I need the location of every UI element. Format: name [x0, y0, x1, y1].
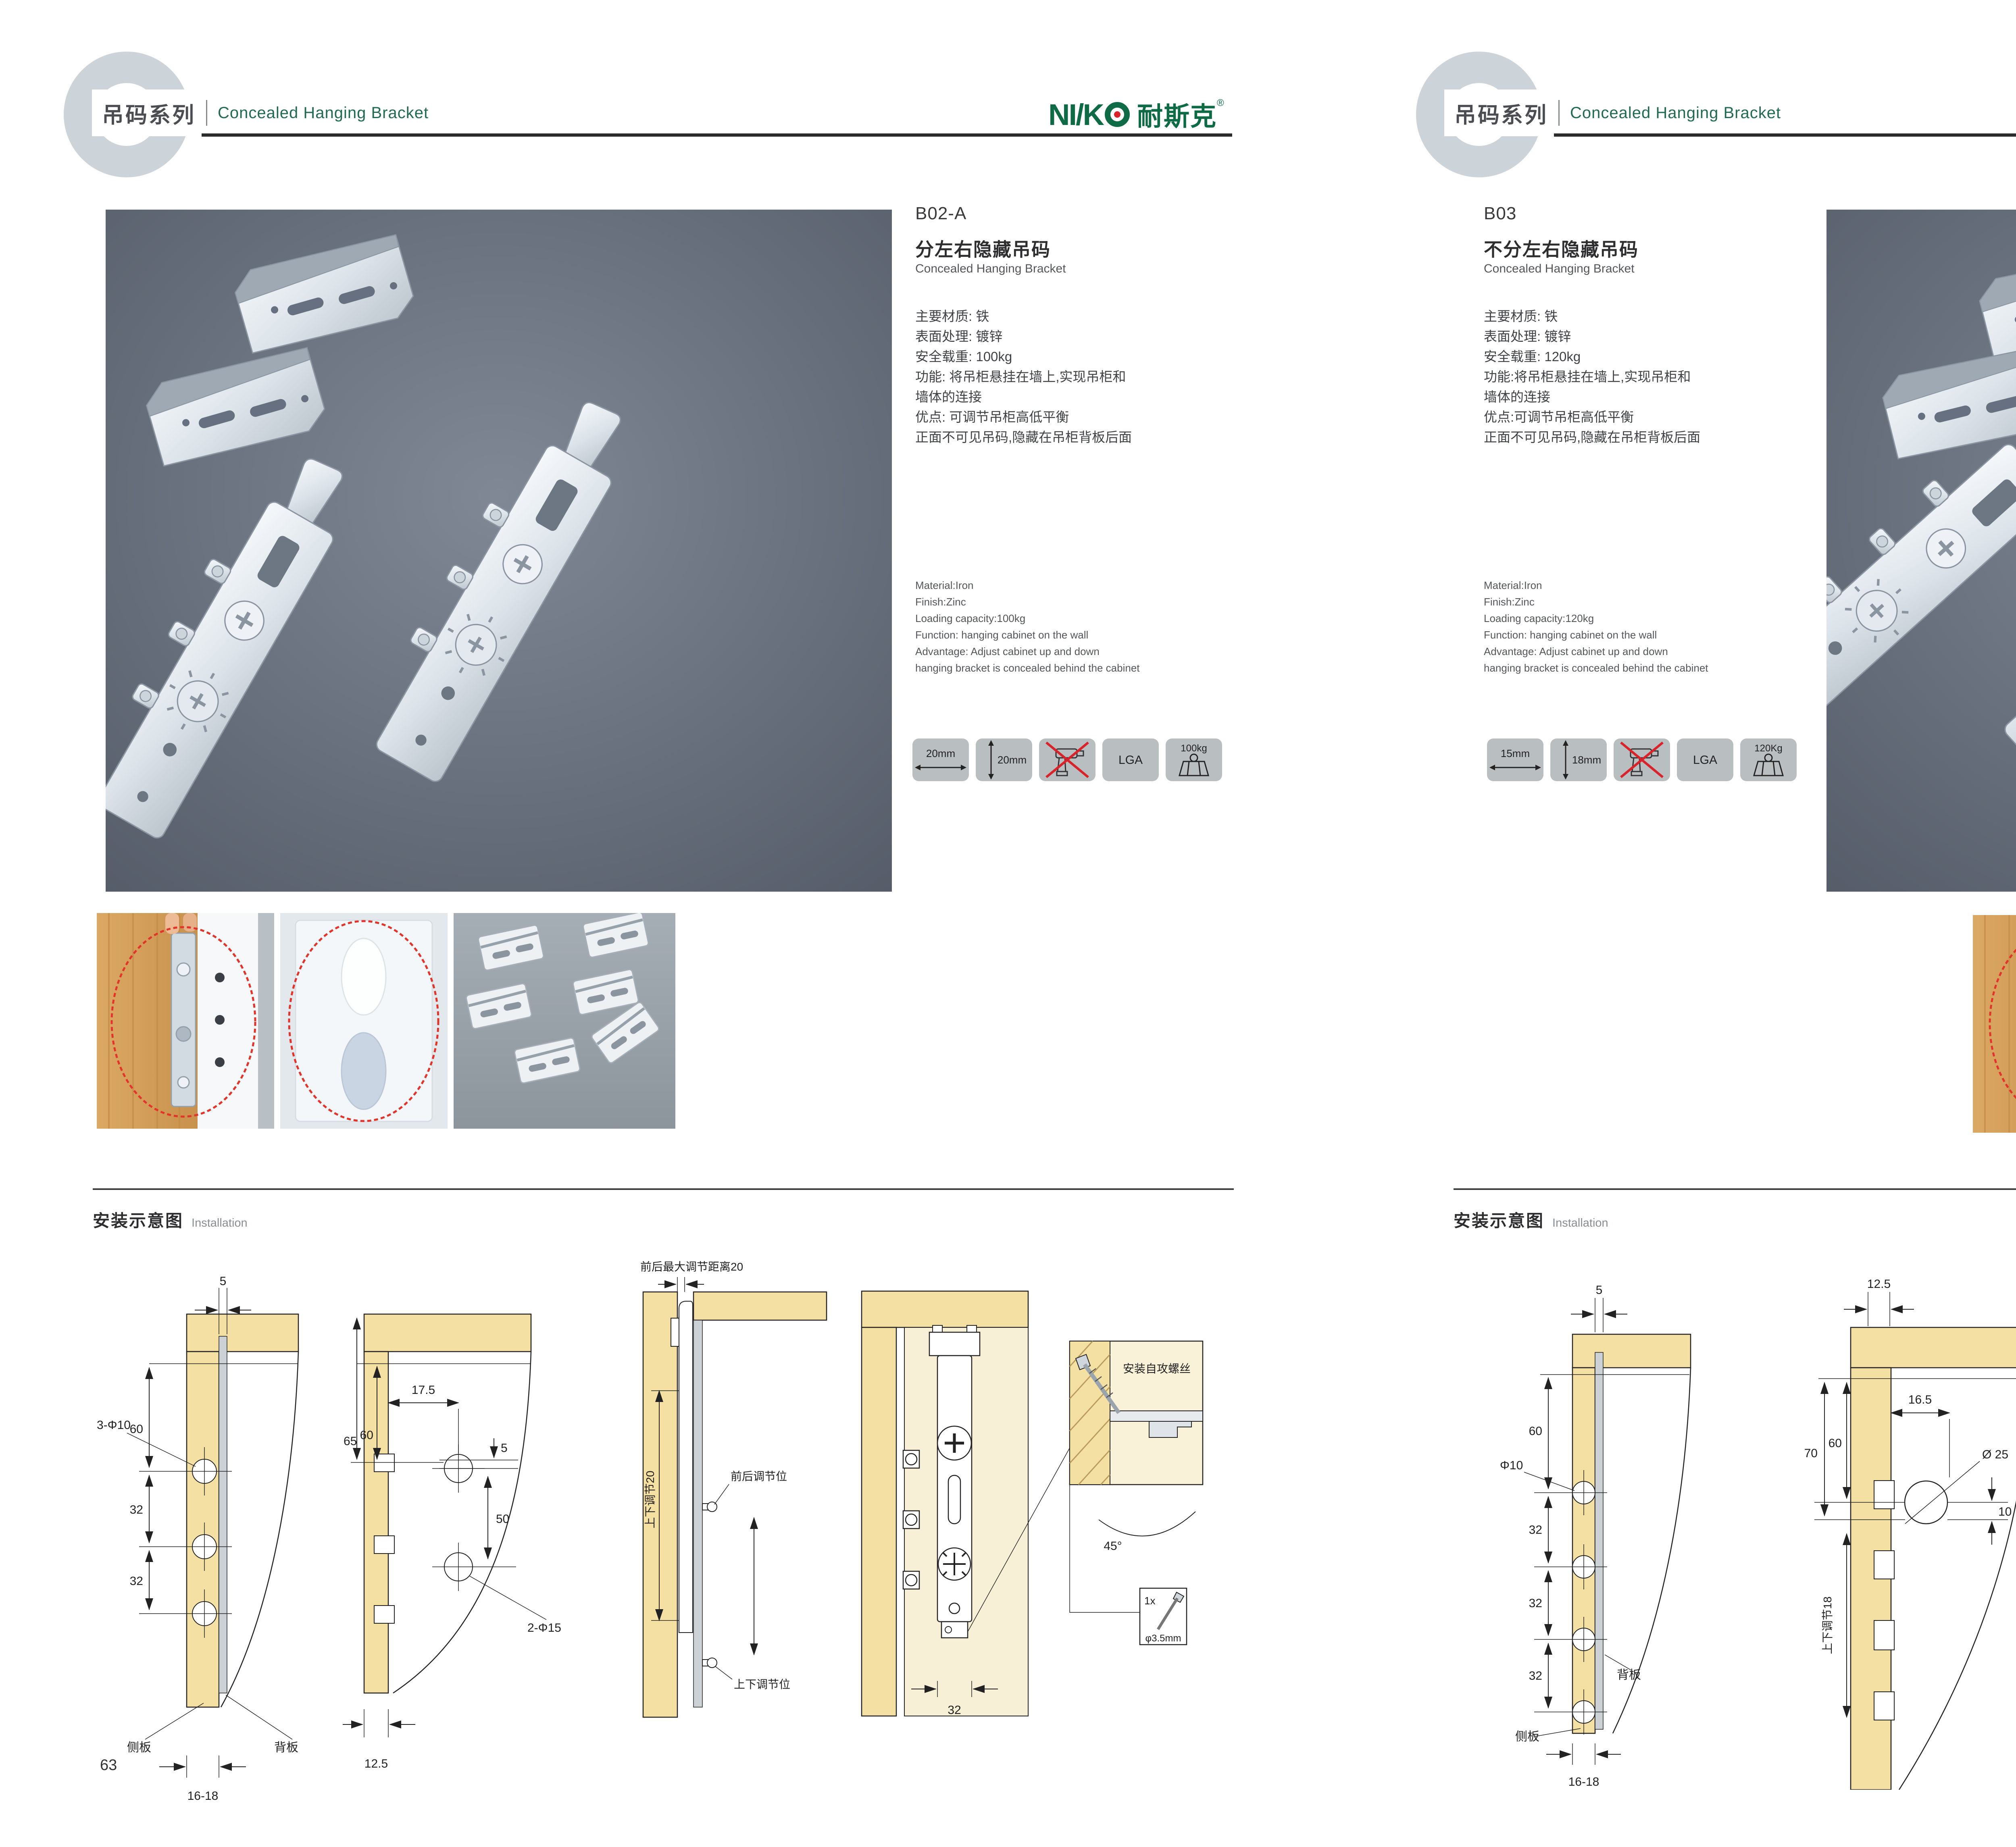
specs-en: Material:Iron Finish:Zinc Loading capaci…	[1484, 577, 1708, 676]
dim-label: 10	[1998, 1505, 2012, 1518]
dim-label: 17.5	[412, 1383, 435, 1397]
spec-line: Advantage: Adjust cabinet up and down	[915, 643, 1140, 660]
dim-label: 32	[1529, 1597, 1542, 1610]
specs-cn: 主要材质: 铁 表面处理: 镀锌 安全载重: 100kg 功能: 将吊柜悬挂在墙…	[915, 306, 1132, 447]
spec-line: Function: hanging cabinet on the wall	[1484, 627, 1708, 643]
page-header: 吊码系列 Concealed Hanging Bracket	[92, 89, 707, 136]
installation-rule	[93, 1188, 1234, 1190]
dim-label: 50	[496, 1512, 509, 1526]
dim-label: 16.5	[1908, 1393, 1932, 1406]
hole-callout: Φ10	[1500, 1459, 1523, 1472]
spec-line: Function: hanging cabinet on the wall	[915, 627, 1140, 643]
spec-line: 功能:将吊柜悬挂在墙上,实现吊柜和	[1484, 367, 1700, 387]
dim-label: 32	[948, 1703, 961, 1717]
installation-title-en: Installation	[192, 1217, 248, 1230]
hole-callout: 3-Φ10	[97, 1419, 131, 1432]
dim-label: 上下调节20	[644, 1471, 656, 1528]
dim-label: 16-18	[1568, 1775, 1599, 1789]
height-value: 18mm	[1572, 754, 1601, 766]
dia-label: φ3.5mm	[1145, 1633, 1181, 1644]
spec-line: Material:Iron	[915, 577, 1140, 594]
part-label: 侧板	[1515, 1730, 1539, 1743]
spec-line: 墙体的连接	[915, 387, 1132, 407]
installation-title-cn: 安装示意图	[1454, 1207, 1544, 1232]
product-name-cn: 不分左右隐藏吊码	[1484, 235, 1639, 262]
part-label: 背板	[274, 1741, 298, 1754]
part-label: 侧板	[127, 1741, 151, 1754]
brand-logo-cn: 耐斯克	[1137, 96, 1217, 133]
diagram-adjustment-side-view: 前后最大调节距离20 上下调节20 前后调节位 上下调节位	[637, 1258, 831, 1725]
specs-en: Material:Iron Finish:Zinc Loading capaci…	[915, 577, 1140, 676]
spec-line: Advantage: Adjust cabinet up and down	[1484, 643, 1708, 660]
feature-icons: 15mm 18mm LGA	[1487, 738, 1797, 781]
product-name-en: Concealed Hanging Bracket	[1484, 262, 1635, 276]
page-number: 63	[100, 1757, 117, 1774]
page-right: 吊码系列 Concealed Hanging Bracket NI/K耐斯克® …	[1352, 0, 2016, 1847]
dim-label: 5	[1596, 1283, 1603, 1297]
diagram-side-panel-drilling: 5 60 Φ10 32 32 32 背板 侧板 16-18	[1492, 1274, 1710, 1810]
no-drill-icon	[1039, 738, 1095, 781]
dim-label: 5	[501, 1441, 508, 1455]
diagram-screw-detail: 安装自攻螺丝 45° 1x φ3.5mm	[960, 1330, 1250, 1653]
width-icon: 15mm	[1487, 738, 1543, 781]
brand-logo-dot-icon	[1114, 111, 1120, 118]
dim-label: 12.5	[364, 1757, 388, 1770]
dim-label: 16-18	[187, 1789, 219, 1803]
product-code: B03	[1484, 204, 1516, 224]
callout-label: 前后调节位	[731, 1470, 787, 1483]
dim-label: 5	[220, 1275, 227, 1288]
product-name-cn: 分左右隐藏吊码	[915, 235, 1051, 262]
header-rule	[202, 133, 1232, 137]
installation-title-en: Installation	[1552, 1217, 1608, 1230]
dim-label: 70	[1804, 1447, 1818, 1460]
spec-line: 主要材质: 铁	[1484, 306, 1700, 327]
series-title-cn: 吊码系列	[1454, 97, 1548, 129]
brand-logo: NI/K耐斯克®	[1048, 96, 1224, 133]
dim-label: 60	[360, 1429, 373, 1442]
load-value: 120Kg	[1754, 743, 1782, 754]
lga-icon: LGA	[1102, 738, 1159, 781]
width-icon: 20mm	[912, 738, 969, 781]
spec-line: 功能: 将吊柜悬挂在墙上,实现吊柜和	[915, 367, 1132, 387]
brand-logo-latin: NI/K	[1048, 98, 1103, 132]
spec-line: Loading capacity:100kg	[915, 610, 1140, 627]
spec-line: 正面不可见吊码,隐藏在吊柜背板后面	[1484, 427, 1700, 447]
dim-label: 12.5	[1867, 1277, 1891, 1291]
spec-line: 正面不可见吊码,隐藏在吊柜背板后面	[915, 427, 1132, 447]
header-divider	[206, 100, 207, 126]
diagram-hole-positions: 12.5 70 60 16.5 Ø 25 10 上下调节18	[1726, 1274, 2016, 1790]
spec-line: 优点: 可调节吊柜高低平衡	[915, 407, 1132, 427]
dim-label: 60	[1829, 1437, 1842, 1450]
thumb-concealed-view	[280, 913, 448, 1129]
installation-header: 安装示意图 Installation	[1454, 1207, 1608, 1232]
load-value: 100kg	[1181, 743, 1207, 754]
spec-line: Finish:Zinc	[1484, 594, 1708, 610]
thumb-install-photo	[97, 913, 274, 1129]
lga-label: LGA	[1118, 753, 1143, 767]
diagram-hole-positions: 65 60 17.5 5 50 2-Φ15 12.5	[343, 1270, 617, 1778]
hole-callout: 2-Φ15	[527, 1621, 561, 1635]
thumb-parts	[454, 913, 675, 1129]
lga-icon: LGA	[1677, 738, 1733, 781]
spec-line: Loading capacity:120kg	[1484, 610, 1708, 627]
hole-callout: Ø 25	[1982, 1448, 2008, 1461]
qty-label: 1x	[1144, 1595, 1155, 1607]
diagram-side-panel-drilling: 5 60 3-Φ10 32 32 侧板 背板 16-18	[93, 1270, 327, 1810]
dim-label: 上下调节18	[1821, 1596, 1834, 1654]
spec-line: 主要材质: 铁	[915, 306, 1132, 327]
dim-label: 60	[1529, 1425, 1542, 1438]
spec-line: Finish:Zinc	[915, 594, 1140, 610]
dim-label: 32	[130, 1575, 143, 1588]
lga-label: LGA	[1693, 753, 1717, 767]
dim-label: 65	[344, 1435, 357, 1448]
installation-title-cn: 安装示意图	[93, 1207, 183, 1232]
load-icon: 120Kg	[1740, 738, 1797, 781]
spec-line: 优点:可调节吊柜高低平衡	[1484, 407, 1700, 427]
installation-rule	[1454, 1188, 2016, 1190]
registered-mark: ®	[1217, 98, 1224, 109]
no-drill-icon	[1614, 738, 1670, 781]
feature-icons: 20mm 20mm LGA	[912, 738, 1222, 781]
callout-label: 安装自攻螺丝	[1123, 1362, 1191, 1375]
installation-header: 安装示意图 Installation	[93, 1207, 248, 1232]
page-header: 吊码系列 Concealed Hanging Bracket	[1444, 89, 2016, 136]
width-value: 15mm	[1501, 747, 1530, 759]
product-name-en: Concealed Hanging Bracket	[915, 262, 1066, 276]
dim-label: 32	[130, 1503, 143, 1516]
spec-line: hanging bracket is concealed behind the …	[1484, 660, 1708, 676]
product-code: B02-A	[915, 204, 966, 224]
series-title-en: Concealed Hanging Bracket	[218, 104, 429, 122]
spec-line: 表面处理: 镀锌	[915, 327, 1132, 347]
height-icon: 18mm	[1550, 738, 1607, 781]
spec-line: 墙体的连接	[1484, 387, 1700, 407]
dim-label: 32	[1529, 1523, 1542, 1537]
brand-logo-o-icon	[1105, 102, 1130, 127]
page-left: 吊码系列 Concealed Hanging Bracket NI/K耐斯克® …	[0, 0, 1352, 1847]
dim-label: 60	[130, 1423, 143, 1436]
height-value: 20mm	[998, 754, 1027, 766]
product-photo-b02a	[106, 210, 892, 892]
header-divider	[1558, 100, 1560, 126]
callout-label: 上下调节位	[734, 1678, 790, 1691]
spec-line: 安全载重: 120kg	[1484, 347, 1700, 367]
spec-line: Material:Iron	[1484, 577, 1708, 594]
spec-line: 表面处理: 镀锌	[1484, 327, 1700, 347]
part-label: 背板	[1617, 1668, 1641, 1682]
dim-label: 45°	[1104, 1539, 1122, 1553]
product-photo-b03	[1826, 210, 2016, 892]
series-title-cn: 吊码系列	[102, 97, 196, 129]
spec-line: 安全载重: 100kg	[915, 347, 1132, 367]
width-value: 20mm	[926, 747, 955, 759]
specs-cn: 主要材质: 铁 表面处理: 镀锌 安全载重: 120kg 功能:将吊柜悬挂在墙上…	[1484, 306, 1700, 447]
header-rule	[1554, 133, 2016, 137]
thumb-install-photo	[1973, 915, 2016, 1133]
spec-line: hanging bracket is concealed behind the …	[915, 660, 1140, 676]
dim-label: 32	[1529, 1669, 1542, 1683]
series-title-en: Concealed Hanging Bracket	[1570, 104, 1781, 122]
height-icon: 20mm	[976, 738, 1032, 781]
catalog-spread: 吊码系列 Concealed Hanging Bracket NI/K耐斯克® …	[0, 0, 2016, 1847]
load-icon: 100kg	[1166, 738, 1222, 781]
dim-label: 前后最大调节距离20	[640, 1260, 743, 1273]
